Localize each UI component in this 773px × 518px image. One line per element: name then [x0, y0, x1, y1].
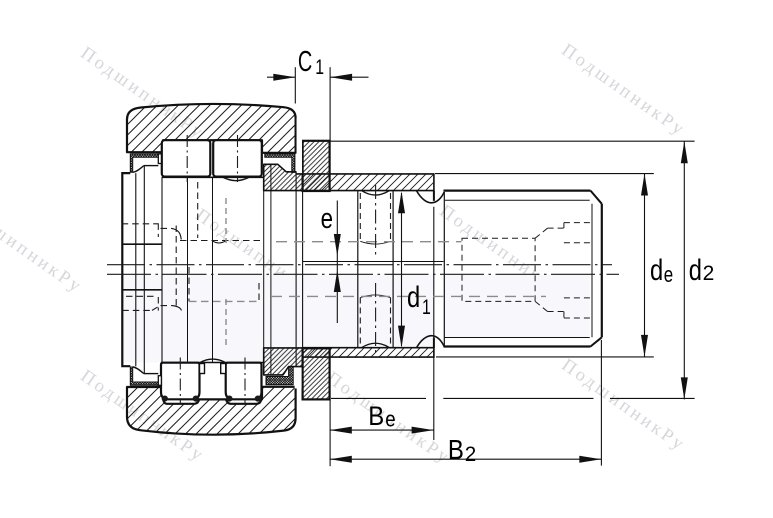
svg-text:2: 2 [703, 262, 715, 285]
svg-text:C: C [298, 46, 312, 78]
svg-text:d: d [407, 281, 420, 314]
svg-text:B: B [368, 401, 384, 431]
svg-text:e: e [664, 262, 673, 287]
svg-text:1: 1 [422, 296, 431, 319]
svg-text:e: e [321, 203, 333, 235]
svg-text:1: 1 [315, 56, 324, 79]
svg-text:d: d [689, 254, 702, 287]
svg-text:e: e [385, 407, 395, 432]
svg-text:B: B [448, 434, 464, 465]
svg-text:d: d [650, 254, 663, 287]
svg-text:2: 2 [465, 443, 477, 466]
